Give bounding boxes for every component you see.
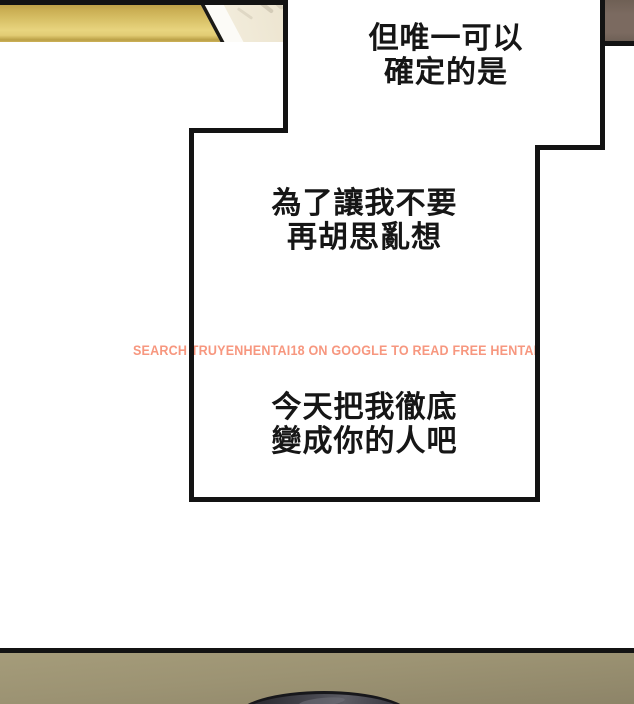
panel-border-top-left-shelf	[189, 128, 288, 133]
panel-border-brown-fragment-bottom	[600, 41, 634, 46]
panel-border-bottom	[189, 497, 540, 502]
panel-border-top-right-shelf	[535, 145, 605, 150]
top-left-image-panel	[0, 0, 284, 42]
caption-top-line2: 確定的是	[290, 56, 602, 90]
caption-middle-line1: 為了讓我不要	[194, 187, 535, 221]
panel-border-top-image-bottom	[0, 0, 288, 5]
hair-highlight	[299, 696, 346, 704]
comic-page: 但唯一可以 確定的是 為了讓我不要 再胡思亂想 今天把我徹底 變成你的人吧 SE…	[0, 0, 634, 704]
caption-bottom-line2: 變成你的人吧	[194, 425, 535, 459]
caption-bottom-line1: 今天把我徹底	[194, 391, 535, 425]
caption-middle: 為了讓我不要 再胡思亂想	[194, 187, 535, 255]
caption-top: 但唯一可以 確定的是	[290, 22, 602, 90]
character-head-silhouette	[236, 691, 412, 704]
caption-bottom: 今天把我徹底 變成你的人吧	[194, 391, 535, 459]
bottom-image-panel	[0, 653, 634, 704]
top-right-image-fragment	[605, 0, 634, 41]
caption-middle-line2: 再胡思亂想	[194, 221, 535, 255]
caption-top-line1: 但唯一可以	[290, 22, 602, 56]
panel-border-right	[535, 145, 540, 502]
panel-border-bottom-strip-top	[0, 648, 634, 653]
panel-border-upper-left-vertical	[283, 0, 288, 133]
